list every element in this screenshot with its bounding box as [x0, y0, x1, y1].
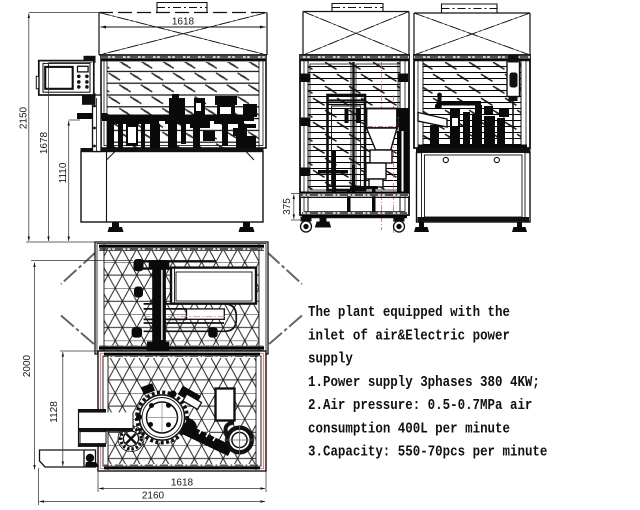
svg-text:2000: 2000 [22, 354, 33, 377]
svg-text:supply: supply [308, 350, 353, 368]
svg-text:2150: 2150 [19, 106, 30, 129]
svg-text:consumption 400L per minute: consumption 400L per minute [308, 419, 510, 437]
svg-text:1618: 1618 [172, 17, 195, 28]
svg-text:1128: 1128 [49, 401, 60, 423]
svg-text:1678: 1678 [39, 131, 50, 154]
svg-text:The plant equipped with the: The plant equipped with the [308, 303, 510, 321]
svg-text:1110: 1110 [58, 162, 69, 183]
svg-text:375: 375 [282, 198, 293, 215]
svg-text:inlet of air&Electric power: inlet of air&Electric power [308, 326, 510, 344]
svg-text:2.Air pressure: 0.5-0.7MPa air: 2.Air pressure: 0.5-0.7MPa air [308, 396, 532, 414]
svg-text:1.Power supply 3phases 380 4KW: 1.Power supply 3phases 380 4KW; [308, 373, 540, 391]
svg-text:3.Capacity: 550-70pcs per minu: 3.Capacity: 550-70pcs per minute [308, 443, 547, 461]
svg-text:2160: 2160 [142, 491, 165, 502]
svg-text:1618: 1618 [171, 478, 194, 489]
